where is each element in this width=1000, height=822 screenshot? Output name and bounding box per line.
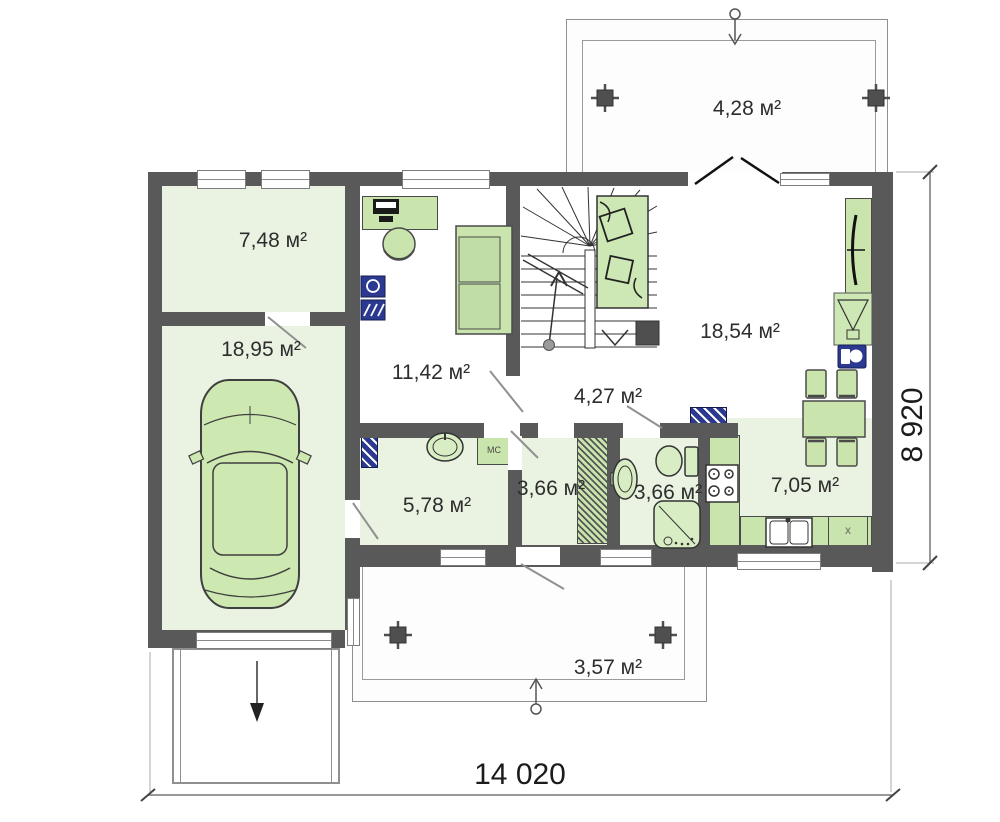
driveway: [172, 648, 340, 784]
wall-left: [148, 172, 162, 648]
washing-machine-label: МС: [478, 445, 510, 455]
area-label-terrace-bottom: 3,57 м²: [543, 656, 673, 680]
kitchen-cabinet-x: x: [828, 516, 868, 546]
door-opening-bathroom: [623, 423, 660, 438]
wall-stairs-left: [506, 186, 520, 376]
door-opening-entrance: [688, 172, 782, 186]
area-label-garage: 18,95 м²: [196, 338, 326, 362]
kitchen-cabinet-x-label: x: [829, 523, 867, 537]
area-label-hall: 11,42 м²: [366, 361, 496, 385]
desk: [362, 196, 438, 230]
window-entry-sidelight: [780, 173, 830, 186]
area-label-corridor: 4,27 м²: [543, 385, 673, 409]
area-label-cabinet-room: 7,48 м²: [208, 229, 338, 253]
window-cabinet-1: [197, 170, 246, 189]
area-label-utility-room: 5,78 м²: [372, 494, 502, 518]
window-bathroom: [600, 549, 652, 566]
window-cabinet-2: [261, 170, 310, 189]
door-opening-cabinet-garage: [265, 312, 310, 326]
door-opening-garage-utility: [345, 500, 360, 538]
tv-unit: [845, 198, 872, 302]
radiator-icon-kitchen: [690, 407, 727, 424]
floor-plan: МС x: [0, 0, 1000, 822]
window-hall: [402, 170, 490, 189]
area-label-wardrobe-room: 3,66 м²: [486, 477, 616, 501]
wall-right: [872, 172, 893, 572]
door-opening-wardrobe: [538, 423, 574, 438]
area-label-terrace-top: 4,28 м²: [682, 97, 812, 121]
area-label-bathroom: 3,66 м²: [603, 481, 733, 505]
door-opening-terrace-bottom: [516, 547, 560, 565]
wall-cabinet-garage: [162, 312, 345, 326]
area-label-living-room: 18,54 м²: [675, 320, 805, 344]
dimension-width: 14 020: [445, 758, 595, 792]
stairwell: [520, 186, 658, 348]
window-garage-east: [347, 598, 360, 646]
garage-door: [196, 632, 332, 649]
door-opening-utility: [508, 436, 522, 470]
area-label-kitchen: 7,05 м²: [740, 474, 870, 498]
garage-floor: [162, 326, 345, 632]
driveway-edges: [180, 650, 332, 782]
dimension-height: 8 920: [896, 370, 930, 480]
window-utility: [440, 549, 486, 566]
window-kitchen: [737, 553, 821, 570]
washing-machine: МС: [477, 437, 511, 465]
